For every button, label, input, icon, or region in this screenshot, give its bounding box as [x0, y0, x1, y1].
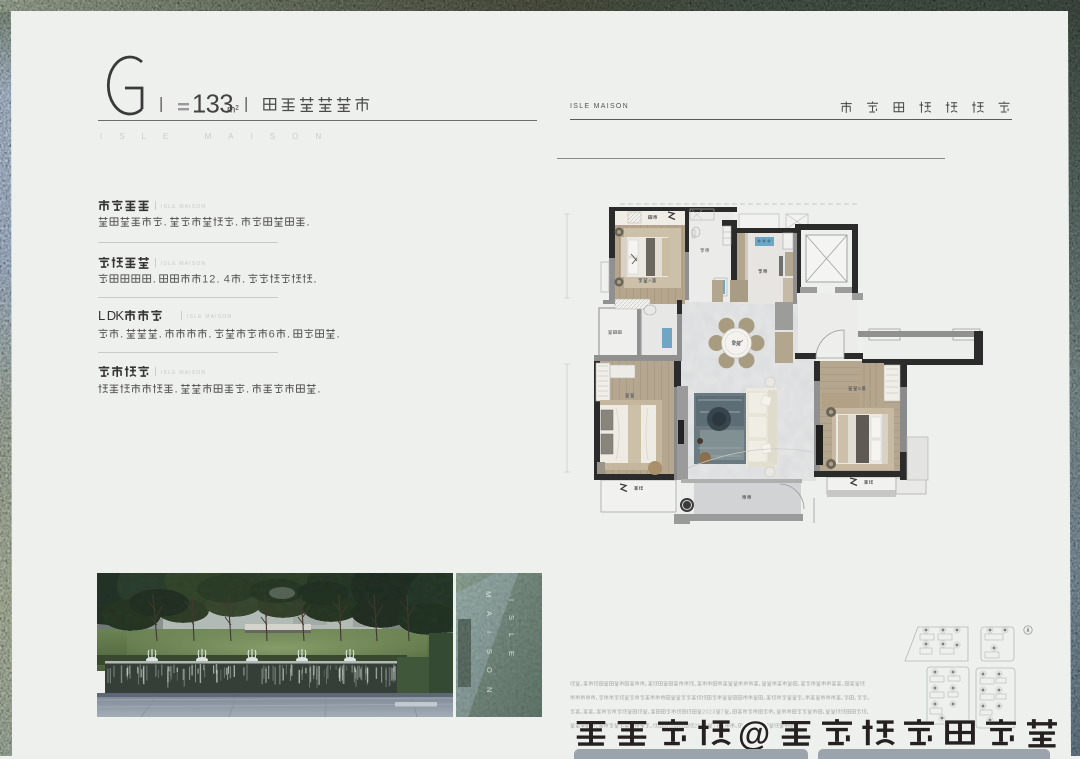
svg-text:I: I: [485, 631, 494, 633]
svg-text:1: 1: [202, 273, 208, 285]
svg-text:ISLE MAISON: ISLE MAISON: [161, 204, 206, 210]
svg-text:m²: m²: [227, 105, 239, 116]
svg-text:E: E: [507, 651, 516, 656]
svg-text:B: B: [858, 386, 861, 391]
svg-text:L: L: [98, 309, 105, 323]
svg-text:S: S: [507, 615, 516, 620]
svg-text:M: M: [484, 591, 493, 597]
svg-text:2: 2: [209, 273, 215, 285]
svg-text:ISLE MAISON: ISLE MAISON: [187, 314, 232, 320]
svg-text:@: @: [738, 715, 770, 752]
svg-text:4: 4: [224, 273, 230, 285]
svg-text:K: K: [115, 309, 124, 323]
svg-text:N: N: [485, 687, 494, 692]
svg-text:ISLE MAISON: ISLE MAISON: [161, 261, 206, 267]
svg-text:ISLE MAISON: ISLE MAISON: [161, 370, 206, 376]
svg-text:.: .: [217, 273, 220, 285]
svg-text:A: A: [485, 611, 494, 616]
svg-text:6: 6: [269, 328, 275, 340]
svg-text:O: O: [485, 667, 494, 673]
svg-text:L: L: [507, 633, 516, 637]
svg-text:I: I: [507, 599, 516, 601]
svg-text:S: S: [485, 649, 494, 654]
